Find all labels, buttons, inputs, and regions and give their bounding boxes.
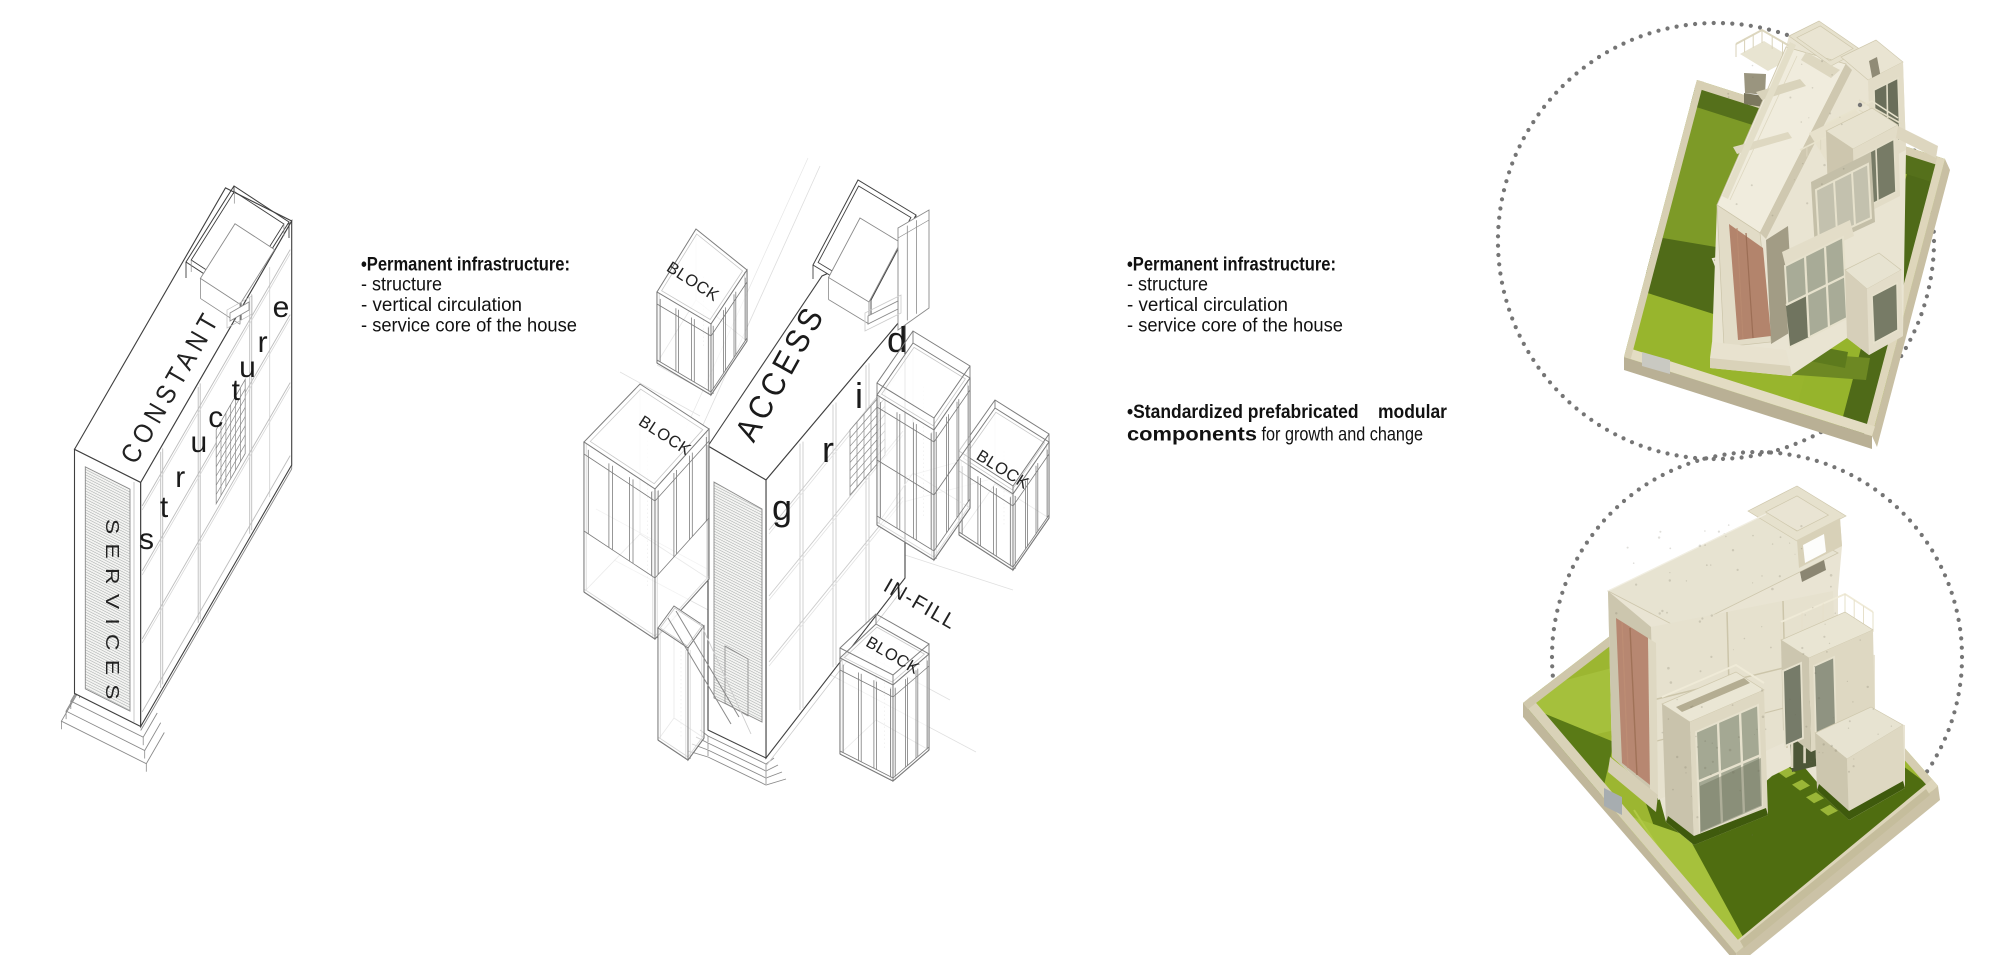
svg-text:e: e bbox=[273, 291, 290, 324]
svg-text:S E R V I C E S: S E R V I C E S bbox=[102, 519, 122, 701]
svg-text:c: c bbox=[208, 401, 223, 434]
svg-text:•Standardized prefabricated: •Standardized prefabricated modular bbox=[1127, 401, 1447, 423]
svg-text:r: r bbox=[258, 326, 268, 359]
svg-text:u: u bbox=[191, 426, 208, 459]
svg-text:r: r bbox=[175, 461, 185, 494]
svg-text:r: r bbox=[822, 429, 834, 470]
svg-text:- vertical circulation: - vertical circulation bbox=[1127, 294, 1288, 316]
svg-text:s: s bbox=[139, 523, 154, 556]
svg-text:•Permanent infrastructure:: •Permanent infrastructure: bbox=[361, 254, 570, 276]
svg-text:i: i bbox=[855, 375, 863, 416]
svg-text:- structure: - structure bbox=[1127, 274, 1208, 296]
svg-text:components for growth and chan: components for growth and change bbox=[1127, 424, 1423, 446]
svg-text:•Permanent infrastructure:: •Permanent infrastructure: bbox=[1127, 254, 1336, 276]
svg-text:t: t bbox=[160, 491, 169, 524]
svg-text:- vertical circulation: - vertical circulation bbox=[361, 294, 522, 316]
svg-text:g: g bbox=[772, 487, 792, 528]
svg-text:- service core of the house: - service core of the house bbox=[361, 315, 577, 337]
svg-text:- structure: - structure bbox=[361, 274, 442, 296]
svg-text:- service core of the house: - service core of the house bbox=[1127, 315, 1343, 337]
svg-text:u: u bbox=[239, 351, 256, 384]
